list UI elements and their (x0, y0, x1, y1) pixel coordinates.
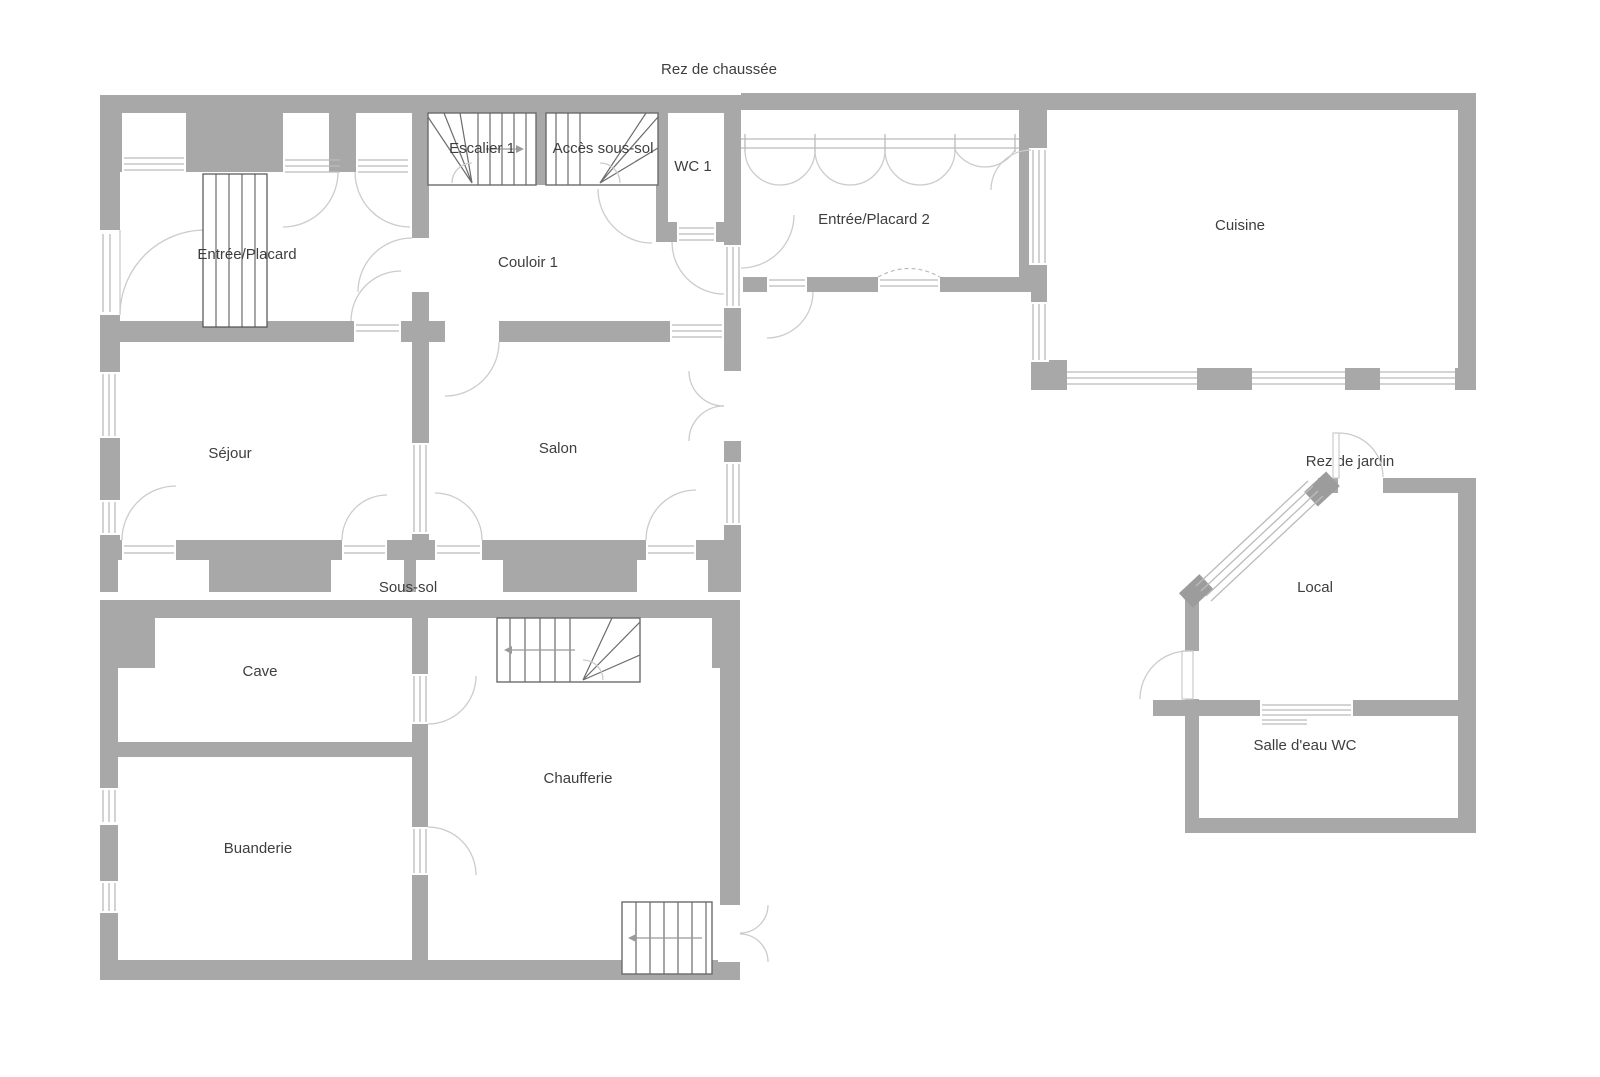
room-label-local: Local (1297, 579, 1333, 596)
room-label-acces-sous-sol: Accès sous-sol (553, 140, 654, 157)
basement-windows (103, 676, 426, 911)
floor-plan-page: Rez de chaussée (0, 0, 1600, 1077)
garden-level: Rez de jardin Local Salle (1140, 433, 1476, 833)
room-label-salon: Salon (539, 440, 577, 457)
ground-floor: Rez de chaussée (98, 61, 1476, 592)
floor-title-basement: Sous-sol (379, 579, 437, 596)
room-label-escalier-1: Escalier 1 (449, 140, 515, 157)
room-label-cave: Cave (242, 663, 277, 680)
room-label-cuisine: Cuisine (1215, 217, 1265, 234)
room-label-buanderie: Buanderie (224, 840, 292, 857)
room-label-wc-1: WC 1 (674, 158, 712, 175)
garden-doors (1140, 433, 1383, 699)
garden-walls (1153, 471, 1476, 833)
room-label-entree-placard: Entrée/Placard (197, 246, 296, 263)
garden-windows (1196, 481, 1351, 724)
floor-title-ground: Rez de chaussée (661, 61, 777, 78)
room-label-couloir-1: Couloir 1 (498, 254, 558, 271)
basement-stairs-main (497, 618, 640, 682)
ground-floor-windows (103, 134, 1455, 553)
room-label-sejour: Séjour (208, 445, 251, 462)
basement: Sous-sol (98, 579, 768, 980)
floor-plan: Rez de chaussée (0, 0, 1600, 1077)
basement-doors (428, 676, 768, 962)
room-label-salle-eau-wc: Salle d'eau WC (1254, 737, 1357, 754)
room-label-chaufferie: Chaufferie (544, 770, 613, 787)
basement-stairs-exit (622, 902, 712, 974)
room-label-entree-placard-2: Entrée/Placard 2 (818, 211, 930, 228)
